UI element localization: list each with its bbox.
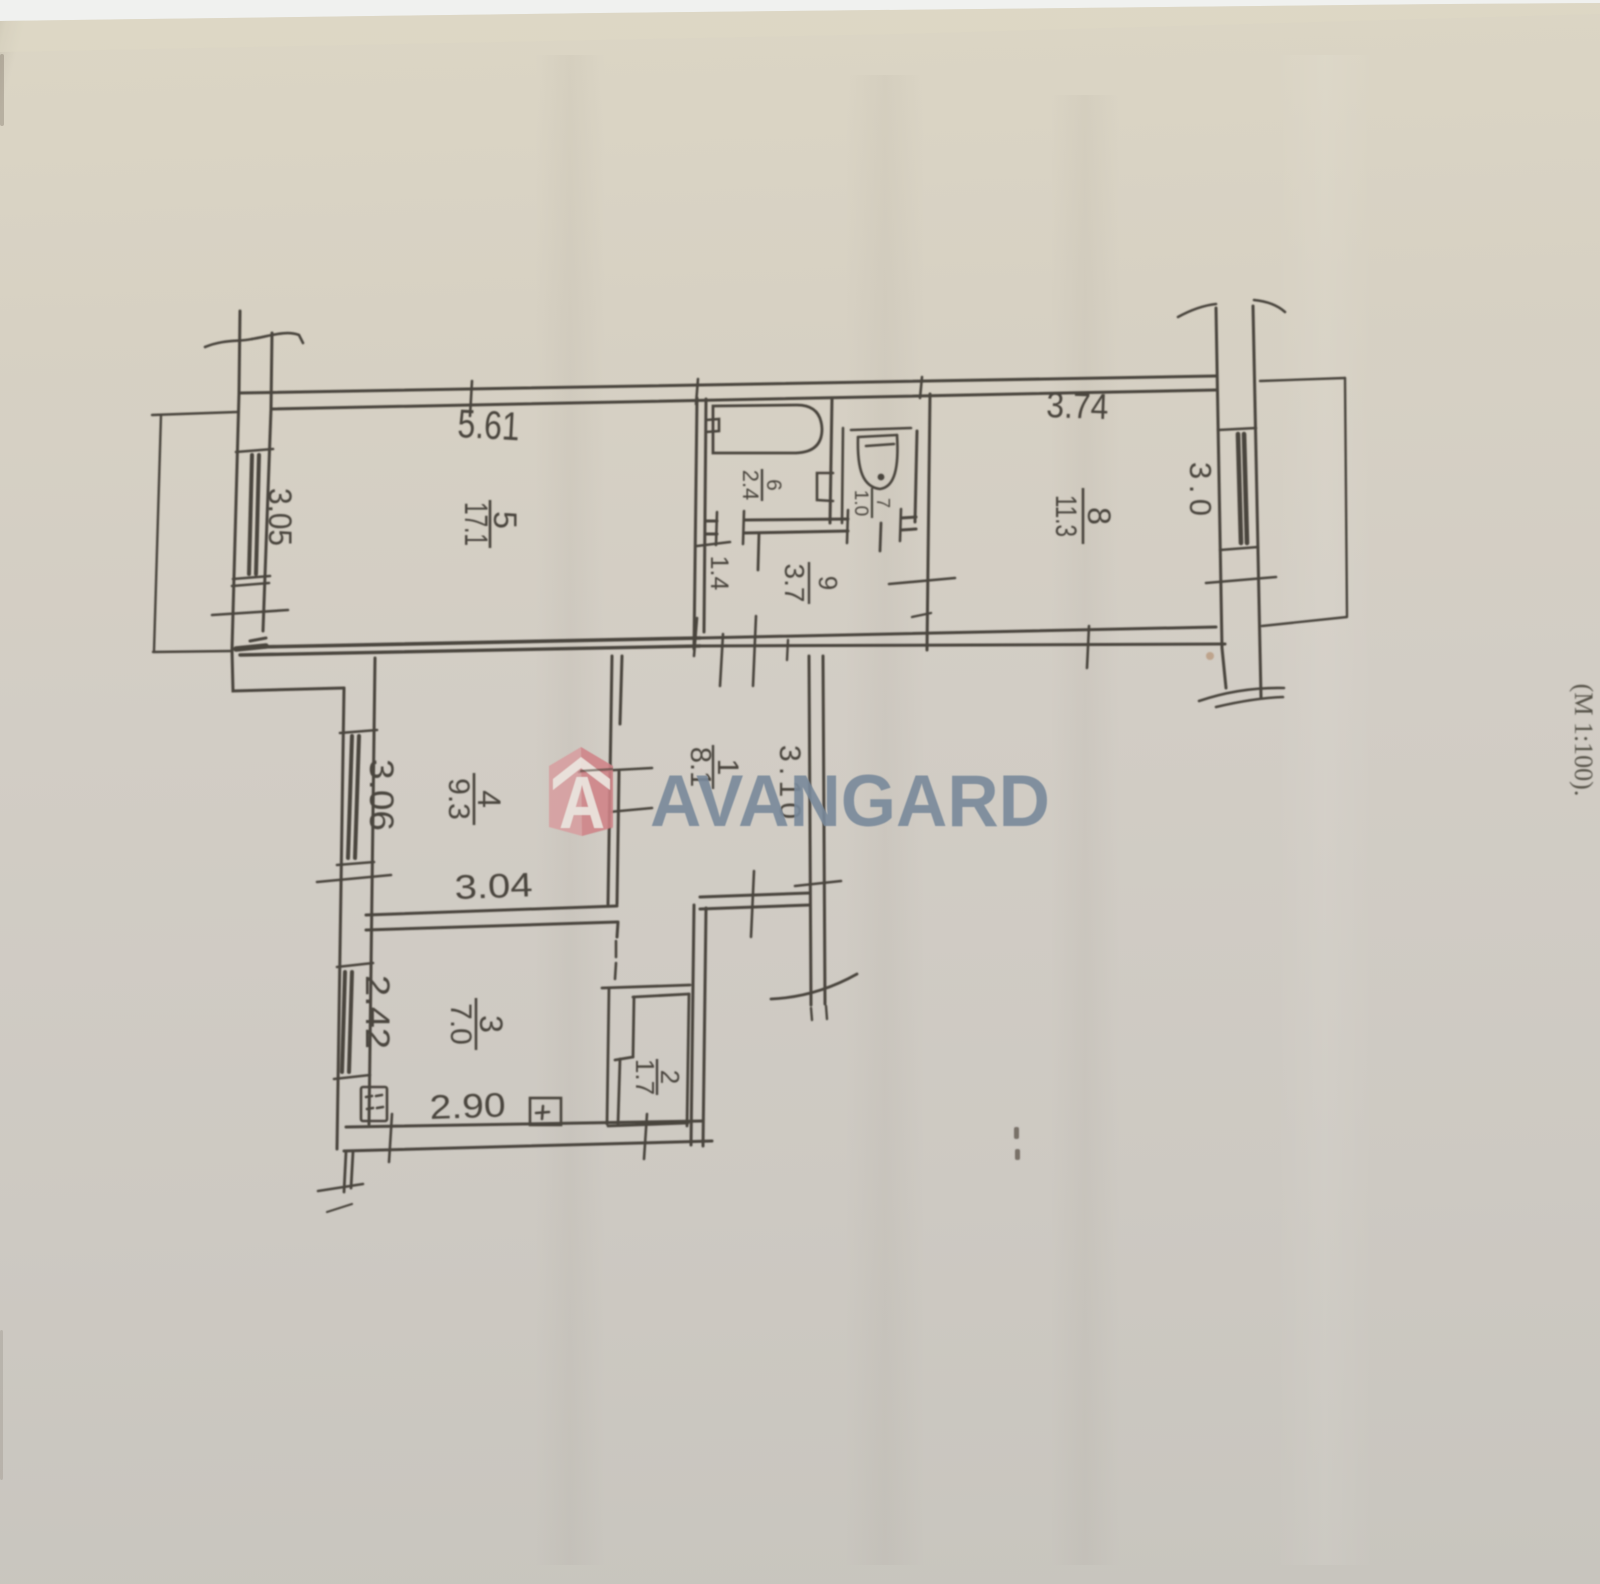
svg-text:1.0: 1.0 (850, 490, 871, 516)
svg-text:3.0: 3.0 (1183, 462, 1218, 516)
svg-text:9: 9 (813, 576, 843, 590)
svg-text:2.4: 2.4 (738, 470, 763, 501)
svg-text:17.1: 17.1 (458, 502, 494, 546)
svg-text:3.04: 3.04 (454, 866, 533, 907)
svg-text:9.3: 9.3 (442, 778, 475, 820)
svg-text:3.74: 3.74 (1046, 384, 1109, 427)
svg-text:(М 1:100).: (М 1:100). (1569, 684, 1598, 797)
svg-text:6: 6 (762, 479, 785, 491)
svg-text:11.3: 11.3 (1049, 495, 1082, 537)
svg-text:8: 8 (1081, 507, 1117, 525)
svg-text:2.42: 2.42 (358, 975, 396, 1049)
svg-text:7.0: 7.0 (444, 1003, 477, 1045)
svg-text:1.7: 1.7 (630, 1059, 660, 1095)
svg-text:3.7: 3.7 (779, 564, 810, 603)
svg-text:A: A (559, 761, 605, 844)
svg-text:7: 7 (873, 498, 893, 508)
svg-text:5.61: 5.61 (457, 402, 521, 449)
svg-text:AVANGARD: AVANGARD (650, 761, 1050, 842)
svg-text:2.90: 2.90 (429, 1086, 506, 1127)
svg-text:1.4: 1.4 (705, 556, 733, 591)
svg-text:3: 3 (473, 1015, 509, 1033)
svg-text:4: 4 (471, 790, 507, 808)
svg-text:3.05: 3.05 (262, 488, 298, 546)
svg-text:3.06: 3.06 (362, 759, 400, 831)
